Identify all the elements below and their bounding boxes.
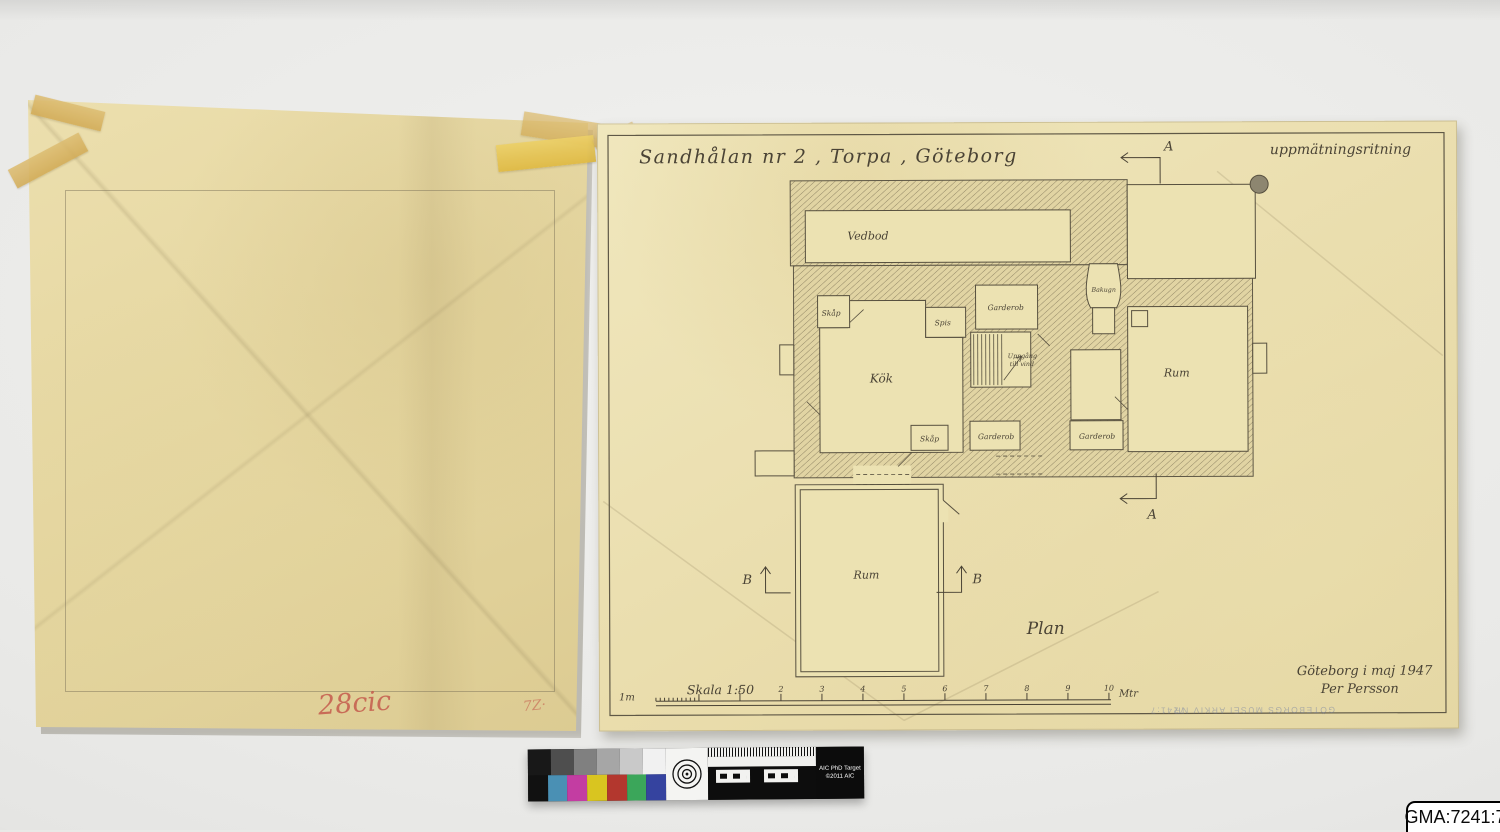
photograph-background: 28cic 7Z· [0,0,1500,830]
target-copyright: ©2011 AIC [826,773,855,781]
gray-patch [620,748,643,774]
label-stairs-2: till vind [1010,361,1034,368]
color-patch [587,775,607,801]
gray-patch [574,749,597,775]
scale-label: Skala 1:50 [687,682,754,697]
label-rum-right: Rum [1163,366,1190,379]
scale-tick-label: 6 [942,684,947,693]
label-garderob-b2: Garderob [1079,432,1115,441]
oven-base [1093,308,1115,334]
scale-tick-label: 8 [1024,684,1029,693]
left-tracing-sheet: 28cic 7Z· [25,96,590,734]
archive-number-text: GMA:7241:7 [1404,807,1500,828]
resolution-tab [764,769,798,782]
plan-caption: Plan [1026,619,1065,639]
handwritten-red-mark: 7Z· [522,697,547,715]
archive-stamp-text: GÖTEBORGS MUSEI ARKIV NR [1173,705,1335,716]
label-rum-bottom: Rum [852,569,879,582]
plan-sheet: A A B B Sandhålan nr 2 , Torpa , Götebor… [597,121,1459,732]
pencil-border [65,190,555,692]
room-mid [1071,350,1121,420]
porch-step [755,451,794,476]
label-skap-bottom: Skåp [920,434,939,443]
grayscale-patches [528,748,666,775]
label-garderob-mid: Garderob [988,303,1024,312]
color-patch [607,775,627,801]
signature: Per Persson [1320,682,1399,697]
focus-target [666,748,708,800]
ruler-section [708,747,816,800]
scale-tick-label: 7 [983,684,989,693]
focus-rings [667,749,707,799]
corner-stove [1132,311,1148,327]
color-patch [548,775,568,801]
window-bay-right [1253,343,1267,373]
wall-opening [853,465,911,486]
color-patch [528,775,548,801]
color-patch [646,774,666,800]
color-patch [567,775,587,801]
left-tracing-sheet-wrap: 28cic 7Z· [25,96,590,734]
section-b-label-left: B [742,573,753,588]
gray-patch [643,748,666,774]
scale-tick-label: 5 [901,684,906,693]
label-stairs-1: Uppgång [1008,353,1037,360]
room-top-right [1127,184,1255,278]
window-bay-left [780,345,794,375]
archive-number-label: GMA:7241:7 [1406,801,1500,832]
section-a-label-top: A [1163,139,1173,154]
gray-patch [528,749,551,775]
archive-stamp-number: 7241:7 [1149,705,1184,715]
target-name: AIC PhD Target [819,765,861,773]
color-patches [528,774,666,801]
date-line: Göteborg i maj 1947 [1297,664,1433,679]
scale-bar [656,700,1111,706]
label-spis: Spis [935,318,951,327]
room-vedbod [805,210,1070,263]
floor-plan-drawing: A A B B Sandhålan nr 2 , Torpa , Götebor… [597,121,1459,732]
label-garderob-b1: Garderob [978,432,1014,441]
well-circle [1250,175,1268,193]
gray-patch [551,749,574,775]
handwritten-red-note: 28cic [317,685,392,721]
target-label: AIC PhD Target ©2011 AIC [816,747,864,799]
scale-tick-label: 2 [777,685,783,694]
scale-left-unit: 1m [619,692,635,703]
gray-patch [597,749,620,775]
scale-right-unit: Mtr [1118,689,1139,700]
color-calibration-target: AIC PhD Target ©2011 AIC [528,747,864,802]
scale-tick-label: 10 [1104,684,1114,693]
section-b-label-right: B [972,572,983,587]
patch-area [528,748,666,801]
ruler-band [708,756,816,767]
drawing-title: Sandhålan nr 2 , Torpa , Göteborg [639,145,1018,168]
section-a-label-bottom: A [1146,508,1156,523]
drawing-type-note: uppmätningsritning [1270,142,1411,158]
scale-tick-label: 4 [859,685,865,694]
label-vedbod: Vedbod [847,229,888,242]
label-bakugn: Bakugn [1091,287,1116,294]
label-kok: Kök [869,371,893,385]
color-patch [627,774,647,800]
resolution-tab [716,770,750,783]
scale-tick-label: 9 [1065,684,1070,693]
label-skap-top: Skåp [822,309,841,318]
scale-tick-label: 3 [819,685,824,694]
